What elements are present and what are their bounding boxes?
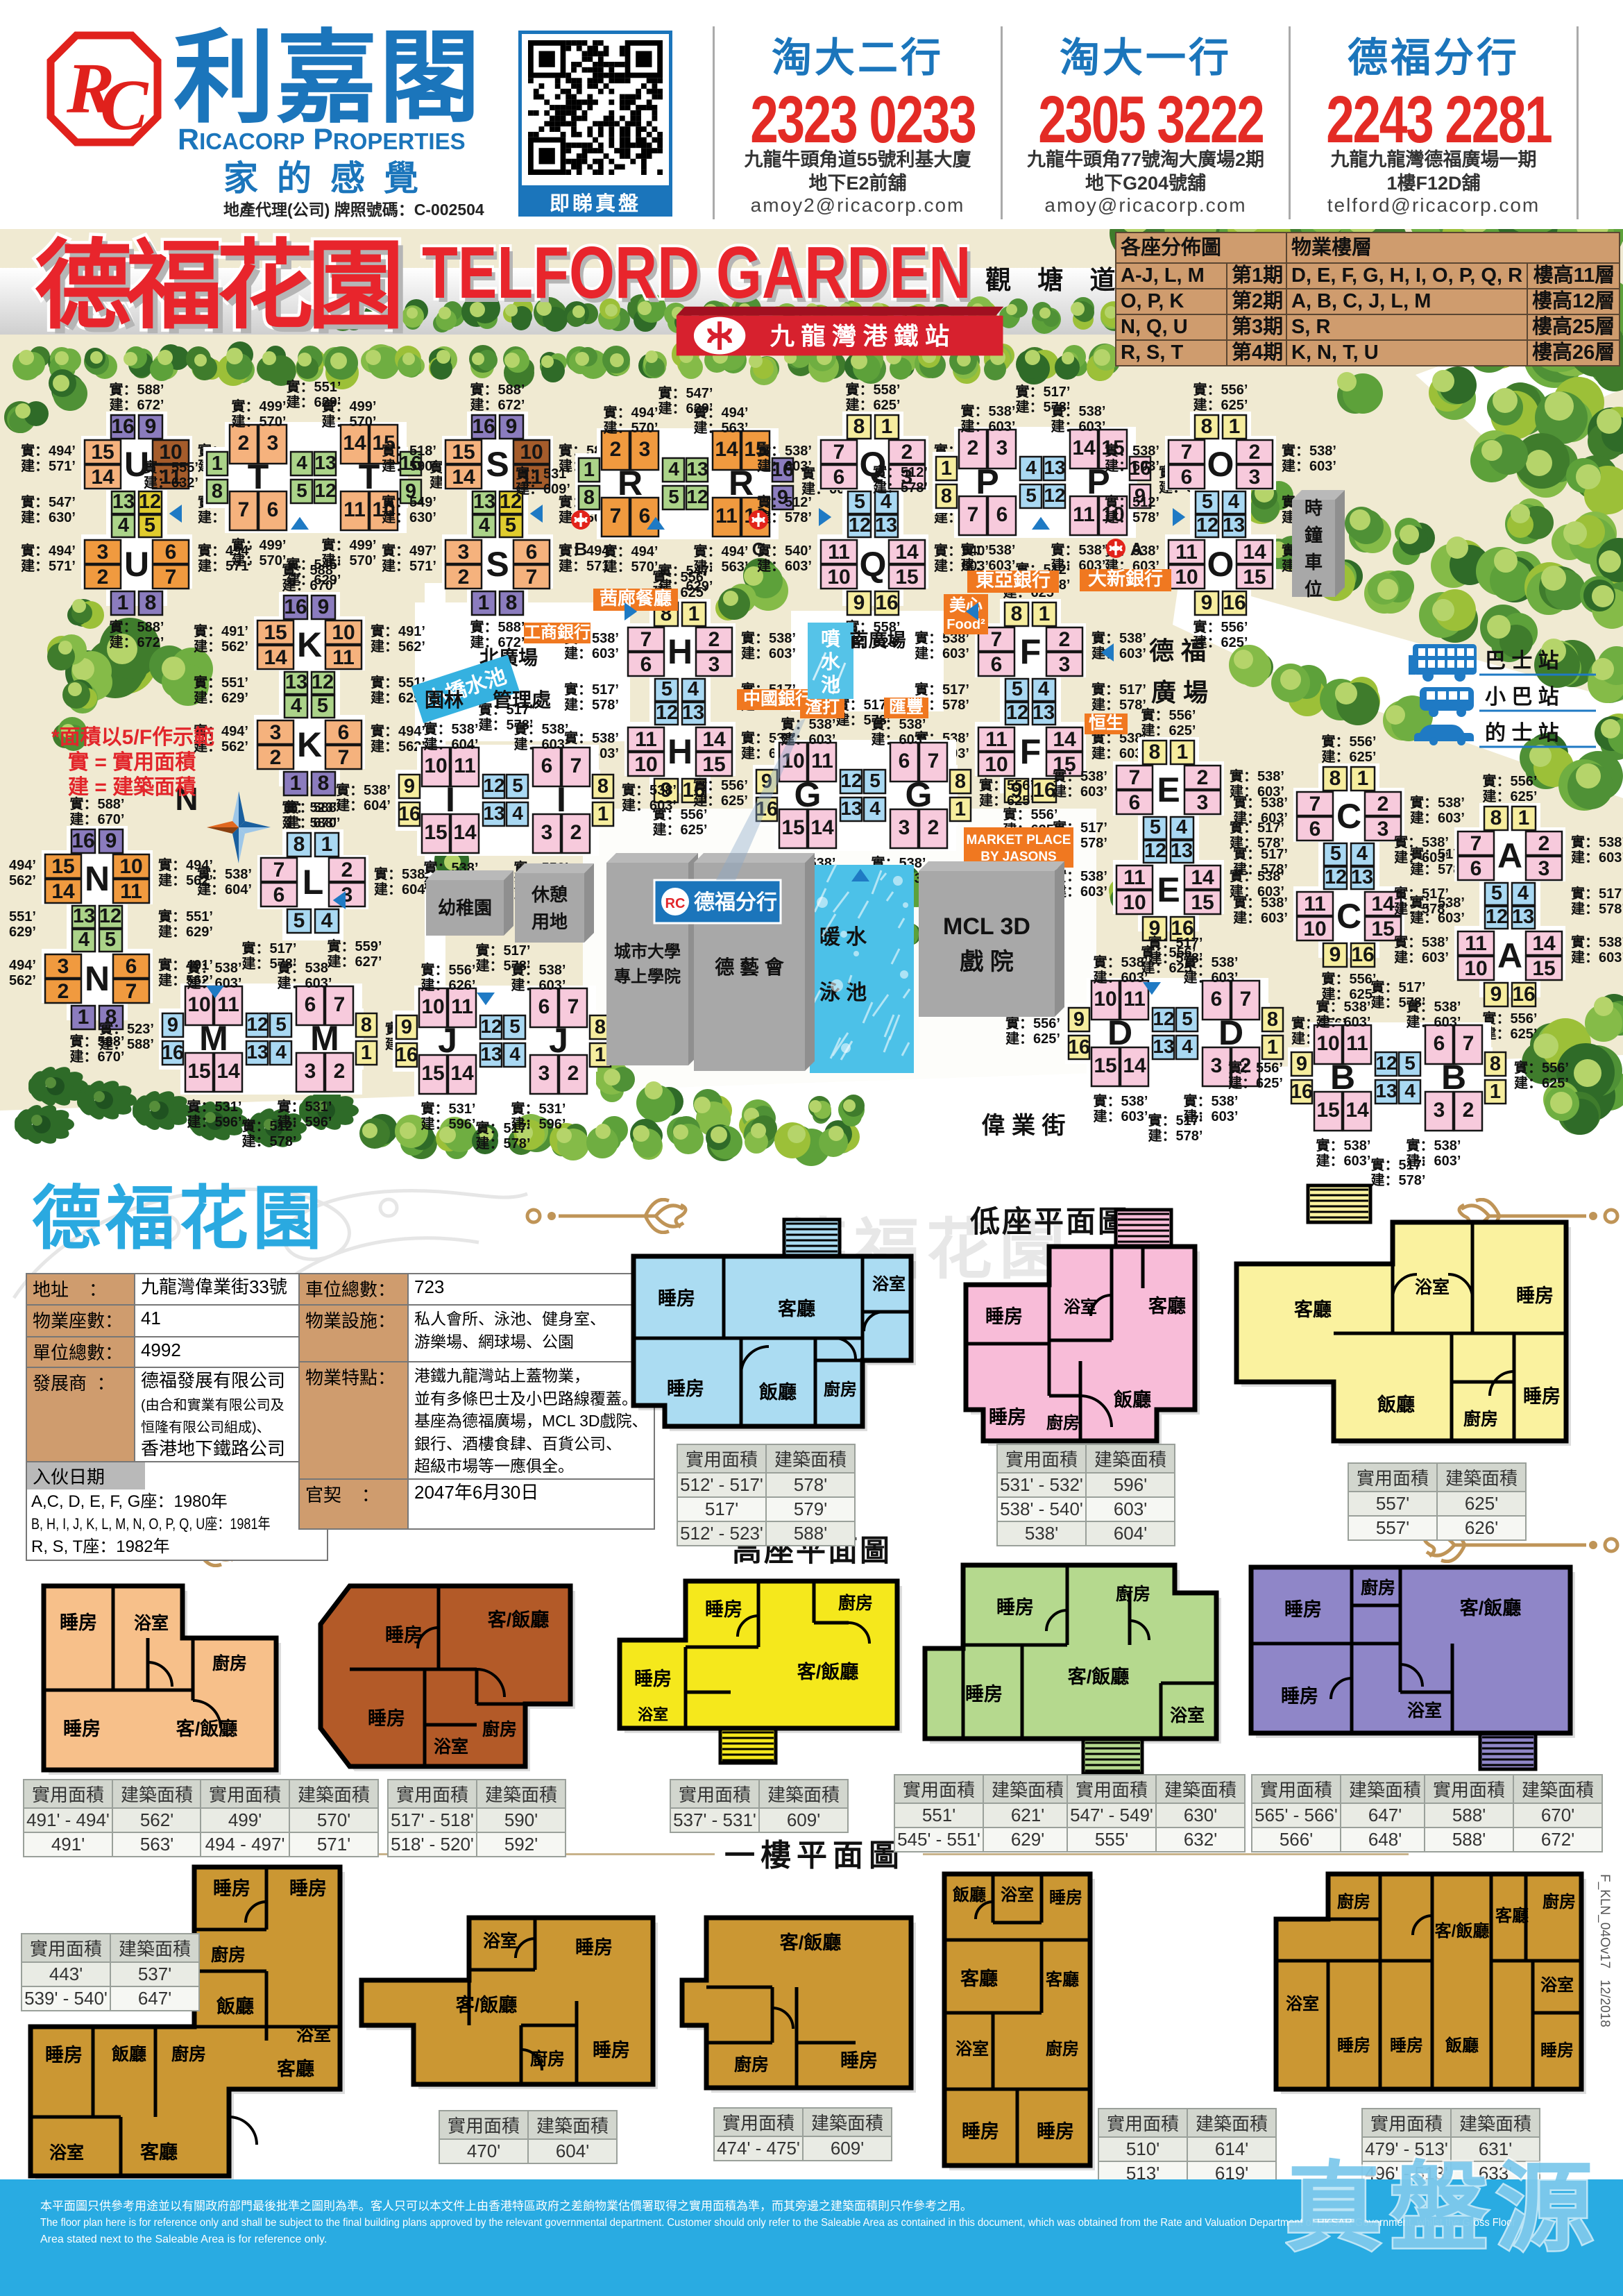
svg-text:11: 11 (635, 728, 657, 751)
svg-text:11: 11 (454, 754, 476, 777)
svg-text:12: 12 (480, 1015, 502, 1037)
svg-text:3: 3 (708, 653, 720, 676)
svg-text:10: 10 (1303, 918, 1326, 940)
svg-text:16: 16 (1512, 983, 1535, 1006)
svg-text:睡房: 睡房 (962, 2121, 999, 2142)
svg-text:G: G (794, 775, 822, 814)
svg-text:7: 7 (126, 980, 137, 1003)
svg-text:4: 4 (1518, 882, 1529, 904)
svg-text:A: A (1130, 539, 1144, 559)
svg-text:浴室: 浴室 (638, 1706, 668, 1723)
svg-text:14: 14 (1072, 437, 1096, 459)
svg-text:10: 10 (119, 855, 142, 878)
svg-text:M: M (310, 1019, 339, 1058)
svg-text:13: 13 (73, 905, 95, 927)
svg-text:2: 2 (270, 746, 282, 769)
svg-text:3: 3 (1211, 1054, 1223, 1077)
svg-text:實：538’建：603’: 實：538’建：603’ (1094, 1092, 1148, 1124)
svg-text:F: F (1020, 632, 1042, 671)
svg-text:實：551’建：629’: 實：551’建：629’ (194, 674, 248, 706)
svg-text:6: 6 (833, 466, 845, 489)
svg-text:實：538’建：603’: 實：538’建：603’ (1394, 834, 1449, 866)
svg-text:3: 3 (1197, 791, 1209, 814)
svg-text:浴室: 浴室 (955, 2039, 989, 2059)
svg-text:廚房: 廚房 (1116, 1584, 1150, 1604)
svg-text:1: 1 (584, 459, 595, 481)
svg-text:15: 15 (1316, 1099, 1339, 1122)
svg-text:14: 14 (715, 438, 738, 461)
svg-text:實：556’建：626’: 實：556’建：626’ (421, 961, 476, 993)
svg-text:12: 12 (686, 486, 708, 507)
svg-text:7: 7 (1463, 1032, 1475, 1055)
svg-text:10: 10 (520, 441, 543, 464)
svg-text:14: 14 (91, 466, 114, 489)
svg-text:6: 6 (541, 754, 553, 777)
svg-text:12: 12 (1196, 514, 1218, 537)
svg-text:實：540’建：603’: 實：540’建：603’ (757, 542, 812, 574)
svg-text:O: O (1207, 445, 1234, 484)
svg-text:4: 4 (1026, 457, 1037, 478)
svg-text:4: 4 (1182, 1036, 1193, 1057)
svg-text:實：517’建：578’: 實：517’建：578’ (1571, 885, 1623, 917)
svg-text:實：588’建：672’: 實：588’建：672’ (470, 381, 525, 413)
svg-text:客廳: 客廳 (1148, 1295, 1186, 1317)
svg-text:廚房: 廚房 (482, 1719, 517, 1739)
svg-text:8: 8 (1490, 1053, 1501, 1075)
svg-text:實 = 實用面積: 實 = 實用面積 (68, 750, 196, 774)
svg-text:廣 場: 廣 場 (1151, 678, 1208, 707)
svg-text:實：547’建：630’: 實：547’建：630’ (21, 493, 76, 525)
svg-text:睡房: 睡房 (1037, 2121, 1074, 2142)
svg-text:實：538’建：603’: 實：538’建：603’ (622, 782, 677, 813)
svg-text:H: H (668, 732, 692, 771)
svg-text:浴室: 浴室 (1415, 1277, 1450, 1297)
svg-text:16: 16 (162, 1042, 184, 1064)
svg-text:10: 10 (187, 993, 210, 1016)
svg-text:12: 12 (483, 775, 504, 796)
svg-text:6: 6 (126, 955, 137, 978)
svg-text:16: 16 (396, 1044, 418, 1066)
svg-text:實：538’建：603’: 實：538’建：603’ (1091, 630, 1146, 661)
svg-text:實：538’建：604’: 實：538’建：604’ (374, 866, 429, 897)
svg-text:廚房: 廚房 (824, 1380, 857, 1399)
svg-text:九龍灣港鐵站: 九龍灣港鐵站 (770, 323, 956, 351)
svg-text:浴室: 浴室 (1170, 1705, 1205, 1725)
svg-text:4: 4 (275, 1041, 287, 1063)
svg-text:偉 業 街: 偉 業 街 (982, 1113, 1066, 1139)
svg-text:實：588’建：670’: 實：588’建：670’ (70, 795, 125, 827)
svg-text:7: 7 (1470, 832, 1482, 855)
svg-text:15: 15 (452, 441, 475, 464)
svg-text:實：556’建：625’: 實：556’建：625’ (1514, 1059, 1569, 1091)
svg-text:15: 15 (1532, 957, 1555, 980)
svg-text:14: 14 (810, 816, 834, 839)
svg-text:11: 11 (343, 498, 366, 521)
svg-text:1: 1 (881, 415, 893, 438)
svg-text:睡房: 睡房 (989, 1407, 1026, 1428)
svg-text:16: 16 (111, 415, 134, 438)
svg-text:實：588’建：672’: 實：588’建：672’ (110, 381, 164, 413)
svg-text:11: 11 (985, 728, 1008, 751)
svg-text:浴室: 浴室 (434, 1737, 468, 1757)
svg-text:4: 4 (1404, 1080, 1416, 1101)
svg-text:實：517’建：578’: 實：517’建：578’ (1371, 979, 1426, 1011)
svg-text:飯廳: 飯廳 (111, 2044, 146, 2064)
svg-text:13: 13 (1223, 514, 1245, 537)
svg-text:渣打: 渣打 (805, 698, 840, 717)
svg-text:10: 10 (1094, 988, 1116, 1011)
svg-text:飯廳: 飯廳 (1445, 2036, 1479, 2055)
svg-text:實：497’建：571’: 實：497’建：571’ (382, 542, 436, 574)
svg-text:11: 11 (1465, 932, 1487, 955)
svg-text:2: 2 (1377, 793, 1389, 816)
svg-text:I: I (556, 780, 566, 819)
svg-text:15: 15 (421, 1062, 444, 1085)
svg-text:客/飯廳: 客/飯廳 (780, 1932, 842, 1953)
svg-text:Q: Q (860, 545, 887, 584)
svg-text:9: 9 (167, 1014, 178, 1036)
svg-text:11: 11 (217, 993, 239, 1016)
svg-text:實：551’建：629’: 實：551’建：629’ (0, 908, 36, 940)
svg-text:廚房: 廚房 (171, 2044, 206, 2064)
svg-text:實：588’建：672’: 實：588’建：672’ (110, 618, 164, 650)
svg-text:9: 9 (1296, 1053, 1307, 1075)
svg-text:3: 3 (58, 955, 69, 978)
svg-text:6: 6 (639, 505, 651, 527)
svg-text:10: 10 (332, 621, 355, 644)
svg-text:12: 12 (1144, 840, 1166, 862)
svg-text:2: 2 (238, 432, 250, 455)
svg-text:C: C (1336, 897, 1361, 936)
svg-text:4: 4 (1176, 816, 1187, 838)
svg-text:11: 11 (811, 750, 833, 773)
svg-text:T: T (359, 457, 380, 496)
svg-text:3: 3 (639, 438, 651, 461)
svg-text:1: 1 (941, 457, 952, 480)
svg-text:8: 8 (597, 775, 609, 797)
svg-text:位: 位 (1305, 579, 1323, 600)
svg-text:實：538’建：603’: 實：538’建：603’ (757, 442, 812, 474)
svg-text:5: 5 (512, 775, 523, 796)
svg-text:15: 15 (424, 821, 447, 844)
svg-text:3: 3 (1059, 653, 1071, 676)
svg-text:J: J (438, 1021, 457, 1060)
svg-text:14: 14 (895, 541, 919, 564)
svg-text:2: 2 (1249, 441, 1261, 464)
svg-text:5: 5 (1012, 678, 1023, 700)
svg-text:14: 14 (1191, 866, 1214, 889)
svg-text:實：559’建：627’: 實：559’建：627’ (328, 938, 382, 970)
svg-text:睡房: 睡房 (658, 1288, 695, 1309)
svg-text:3: 3 (1434, 1099, 1445, 1122)
svg-text:10: 10 (1464, 957, 1487, 980)
svg-text:實：517’建：578’: 實：517’建：578’ (564, 681, 619, 713)
svg-text:7: 7 (570, 754, 582, 777)
svg-text:12: 12 (840, 770, 862, 791)
svg-text:2: 2 (1059, 628, 1071, 651)
svg-text:13: 13 (480, 1043, 502, 1065)
svg-text:廚房: 廚房 (211, 1945, 246, 1965)
svg-text:廚房: 廚房 (1046, 2039, 1079, 2059)
svg-text:實：499’建：570’: 實：499’建：570’ (232, 398, 287, 430)
svg-text:實：531’建：596’: 實：531’建：596’ (278, 1098, 332, 1130)
svg-text:7: 7 (967, 503, 979, 526)
svg-text:5: 5 (1182, 1008, 1193, 1029)
svg-text:13: 13 (1512, 906, 1534, 928)
svg-text:4: 4 (869, 797, 881, 819)
svg-text:A: A (1497, 936, 1522, 975)
svg-text:實：588’建：672’: 實：588’建：672’ (470, 618, 525, 650)
svg-text:睡房: 睡房 (840, 2050, 878, 2071)
svg-text:12: 12 (1375, 1052, 1397, 1074)
svg-text:11: 11 (332, 646, 355, 669)
svg-text:8: 8 (318, 772, 330, 795)
svg-text:2: 2 (570, 821, 582, 844)
svg-text:5: 5 (668, 486, 679, 507)
svg-text:6: 6 (165, 541, 177, 564)
svg-text:實：538’建：604’: 實：538’建：604’ (197, 866, 252, 897)
svg-text:11: 11 (1123, 866, 1146, 889)
svg-text:睡房: 睡房 (289, 1878, 327, 1899)
svg-text:睡房: 睡房 (985, 1306, 1023, 1327)
svg-text:實：538’建：603’: 實：538’建：603’ (1316, 998, 1371, 1030)
svg-text:7: 7 (1129, 766, 1141, 789)
svg-text:7: 7 (610, 505, 622, 527)
svg-text:9: 9 (105, 829, 117, 852)
svg-text:1: 1 (955, 798, 966, 820)
svg-text:東亞銀行: 東亞銀行 (976, 569, 1051, 591)
svg-text:4: 4 (1228, 491, 1239, 513)
svg-text:1: 1 (78, 1006, 90, 1029)
svg-text:睡房: 睡房 (1523, 1386, 1561, 1407)
svg-text:睡房: 睡房 (1390, 2036, 1423, 2055)
svg-text:11: 11 (1175, 541, 1198, 564)
svg-text:7: 7 (991, 628, 1003, 651)
svg-text:5: 5 (275, 1013, 287, 1035)
svg-text:12: 12 (99, 905, 121, 927)
svg-text:1: 1 (361, 1042, 372, 1064)
svg-text:6: 6 (267, 498, 279, 521)
svg-text:12: 12 (139, 491, 161, 513)
svg-text:客廳: 客廳 (1046, 1970, 1079, 1989)
svg-text:7: 7 (1240, 988, 1252, 1011)
svg-text:14: 14 (1371, 893, 1395, 915)
svg-text:C: C (100, 65, 149, 145)
svg-text:客/飯廳: 客/飯廳 (1435, 1921, 1490, 1941)
svg-text:實：556’建：625’: 實：556’建：625’ (1005, 1015, 1060, 1047)
svg-text:15: 15 (1094, 1054, 1116, 1077)
svg-text:5: 5 (1491, 882, 1502, 904)
svg-text:8: 8 (1267, 1008, 1278, 1031)
svg-text:2: 2 (97, 566, 109, 589)
svg-text:用地: 用地 (532, 911, 568, 932)
svg-text:4: 4 (78, 929, 90, 951)
svg-text:14: 14 (51, 880, 75, 903)
svg-text:德福分行: 德福分行 (694, 891, 777, 914)
svg-text:實：518’建：590’: 實：518’建：590’ (382, 442, 436, 474)
svg-text:3: 3 (538, 1062, 550, 1085)
svg-text:4: 4 (118, 514, 129, 537)
svg-text:園林: 園林 (425, 689, 464, 711)
svg-text:2: 2 (458, 566, 470, 589)
svg-text:實：588’建：670’: 實：588’建：670’ (286, 799, 341, 831)
svg-text:3: 3 (305, 1060, 316, 1083)
svg-text:N: N (85, 859, 110, 898)
svg-text:實：547’建：629’: 實：547’建：629’ (658, 385, 713, 416)
svg-text:實：556’建：625’: 實：556’建：625’ (1193, 381, 1248, 413)
svg-text:12: 12 (1325, 866, 1347, 888)
svg-text:4: 4 (321, 909, 333, 932)
svg-text:實：531’建：596’: 實：531’建：596’ (511, 1100, 566, 1132)
svg-text:15: 15 (1243, 566, 1266, 589)
svg-text:實：538’建：603’: 實：538’建：603’ (961, 403, 1016, 434)
svg-text:9: 9 (318, 596, 330, 618)
svg-text:客廳: 客廳 (960, 1968, 998, 1989)
svg-text:1: 1 (212, 453, 223, 475)
svg-text:睡房: 睡房 (575, 1937, 613, 1958)
svg-text:實：538’建：603’: 實：538’建：603’ (1316, 1137, 1371, 1169)
svg-text:14: 14 (343, 432, 366, 455)
svg-text:實：538’建：603’: 實：538’建：603’ (1394, 934, 1449, 965)
svg-text:實：538’建：603’: 實：538’建：603’ (1571, 934, 1623, 965)
svg-text:13: 13 (840, 797, 862, 819)
svg-text:D: D (1218, 1013, 1243, 1052)
svg-text:16: 16 (472, 415, 495, 438)
svg-text:13: 13 (1171, 840, 1193, 862)
svg-text:實：517’建：578’: 實：517’建：578’ (476, 942, 531, 974)
svg-text:B: B (1330, 1058, 1355, 1097)
svg-text:客廳: 客廳 (140, 2141, 178, 2163)
svg-text:7: 7 (1181, 441, 1193, 464)
svg-text:15: 15 (187, 1060, 210, 1083)
svg-text:浴室: 浴室 (1540, 1975, 1574, 1995)
svg-text:6: 6 (338, 721, 350, 744)
svg-text:實：538’建：603’: 實：538’建：603’ (1407, 1137, 1461, 1169)
svg-text:12: 12 (1044, 484, 1065, 506)
svg-text:8: 8 (941, 485, 952, 507)
svg-text:5: 5 (509, 1015, 520, 1037)
svg-text:客/飯廳: 客/飯廳 (797, 1661, 859, 1682)
svg-text:13: 13 (473, 491, 495, 513)
svg-text:11: 11 (1304, 893, 1326, 915)
svg-text:K: K (297, 625, 322, 664)
svg-text:R: R (729, 464, 754, 503)
svg-text:15: 15 (91, 441, 114, 464)
svg-text:9: 9 (853, 591, 865, 614)
svg-text:實：551’建：629’: 實：551’建：629’ (287, 378, 341, 410)
svg-text:15: 15 (264, 621, 287, 644)
svg-text:實：551’建：629’: 實：551’建：629’ (158, 908, 213, 940)
svg-text:U: U (124, 545, 149, 584)
svg-text:13: 13 (112, 491, 135, 513)
svg-text:睡房: 睡房 (965, 1684, 1003, 1705)
svg-text:5: 5 (661, 678, 672, 700)
svg-text:7: 7 (238, 498, 250, 521)
svg-text:客/飯廳: 客/飯廳 (488, 1609, 550, 1630)
svg-text:實：538’建：603’: 實：538’建：603’ (1233, 794, 1288, 826)
svg-text:11: 11 (1073, 503, 1095, 526)
svg-text:14: 14 (450, 1062, 474, 1085)
svg-text:3: 3 (1249, 466, 1261, 489)
svg-text:8: 8 (853, 415, 865, 438)
svg-text:15: 15 (1191, 891, 1214, 914)
svg-text:2: 2 (568, 1062, 579, 1085)
svg-text:實：538’建：603’: 實：538’建：603’ (1282, 442, 1336, 474)
svg-text:車: 車 (1305, 552, 1323, 573)
svg-text:5: 5 (1330, 843, 1341, 865)
svg-text:15: 15 (895, 566, 918, 589)
svg-text:15: 15 (51, 855, 74, 878)
svg-text:8: 8 (1490, 807, 1502, 829)
svg-text:小 巴 站: 小 巴 站 (1485, 686, 1559, 709)
svg-text:1: 1 (595, 1044, 606, 1066)
svg-text:實：588’建：670’: 實：588’建：670’ (282, 562, 337, 593)
svg-text:*面積以5/F作示範: *面積以5/F作示範 (51, 725, 214, 749)
svg-text:廚房: 廚房 (212, 1653, 247, 1673)
svg-text:14: 14 (1053, 728, 1076, 751)
svg-text:11: 11 (1123, 988, 1146, 1011)
svg-text:實：517’建：578’: 實：517’建：578’ (242, 940, 297, 972)
svg-text:7: 7 (526, 566, 538, 589)
svg-text:睡房: 睡房 (1337, 2036, 1370, 2055)
svg-text:6: 6 (996, 503, 1008, 526)
svg-text:浴室: 浴室 (49, 2143, 84, 2163)
svg-text:14: 14 (264, 646, 287, 669)
svg-text:客/飯廳: 客/飯廳 (1068, 1666, 1130, 1687)
svg-text:12: 12 (1006, 702, 1028, 724)
svg-text:7: 7 (928, 750, 940, 773)
svg-text:實：517’建：578’: 實：517’建：578’ (1394, 885, 1449, 917)
svg-text:3: 3 (267, 432, 279, 455)
svg-text:建 = 建築面積: 建 = 建築面積 (68, 775, 196, 799)
svg-text:5: 5 (1404, 1052, 1416, 1074)
svg-text:16: 16 (1068, 1036, 1090, 1058)
svg-text:T: T (248, 457, 269, 496)
svg-text:12: 12 (656, 702, 678, 724)
svg-text:16: 16 (71, 829, 94, 852)
svg-text:實：538’建：603’: 實：538’建：603’ (961, 541, 1016, 573)
svg-text:實：494’建：570’: 實：494’建：570’ (604, 543, 658, 575)
svg-text:實：494’建：571’: 實：494’建：571’ (21, 542, 76, 574)
svg-text:11: 11 (828, 541, 850, 564)
svg-text:實：556’建：625’: 實：556’建：625’ (1322, 970, 1377, 1002)
svg-text:C: C (1336, 797, 1361, 836)
svg-text:客/飯廳: 客/飯廳 (1460, 1597, 1522, 1619)
svg-text:5: 5 (1202, 491, 1213, 513)
svg-text:10: 10 (634, 753, 657, 776)
svg-text:9: 9 (506, 415, 518, 438)
svg-text:S: S (486, 545, 509, 584)
svg-text:客廳: 客廳 (1294, 1299, 1332, 1320)
svg-text:D: D (1107, 1013, 1132, 1052)
svg-text:實：494’建：562’: 實：494’建：562’ (0, 856, 36, 888)
svg-text:城市大學: 城市大學 (614, 942, 681, 961)
svg-text:12: 12 (314, 480, 336, 501)
svg-text:E: E (1157, 770, 1180, 809)
svg-text:6: 6 (538, 995, 550, 1018)
svg-text:飯廳: 飯廳 (952, 1885, 986, 1905)
svg-text:實：556’建：625’: 實：556’建：625’ (1483, 773, 1538, 804)
svg-text:2: 2 (708, 628, 720, 651)
svg-text:實：538’建：604’: 實：538’建：604’ (424, 720, 479, 752)
svg-text:15: 15 (1371, 918, 1394, 940)
svg-text:13: 13 (285, 671, 307, 693)
svg-text:8: 8 (595, 1016, 606, 1038)
svg-text:實：538’建：603’: 實：538’建：603’ (1105, 442, 1159, 474)
svg-text:睡房: 睡房 (1281, 1686, 1318, 1707)
svg-text:4: 4 (1357, 843, 1368, 865)
svg-text:睡房: 睡房 (634, 1669, 672, 1689)
